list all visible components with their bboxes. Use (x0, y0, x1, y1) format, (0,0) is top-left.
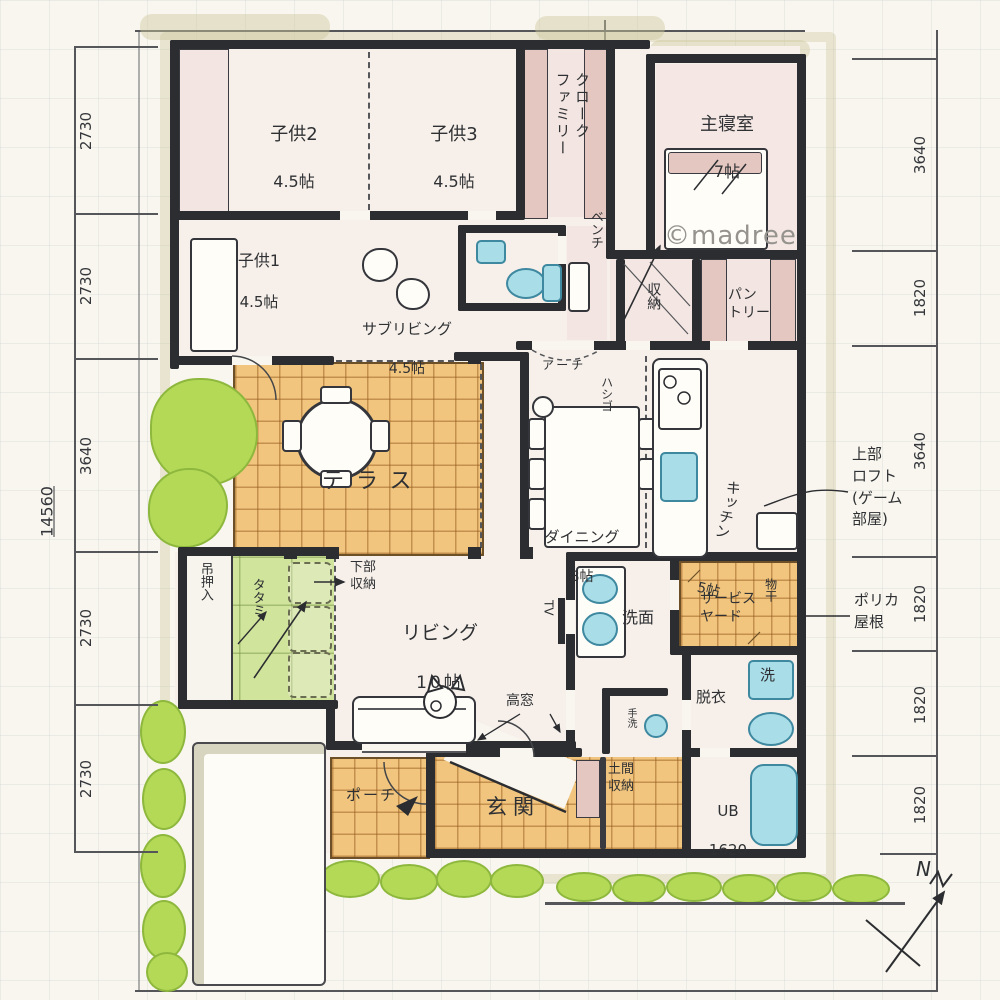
room-label-kodomo2: 子供2 4.5帖 (248, 100, 340, 194)
door-opening (682, 700, 691, 730)
door-opening (566, 600, 575, 634)
wall (458, 303, 566, 311)
dim-right-0: 3640 (911, 122, 929, 188)
door-opening (566, 690, 575, 730)
toilet-basin (476, 240, 506, 264)
dim-tick (852, 345, 936, 347)
floor-plan-canvas: ©madree 子供2 4.5帖 子供3 4.5帖 子供1 4.5帖 ファミリー… (0, 0, 1000, 1000)
note-lower-storage: 下部 収納 (350, 560, 376, 594)
wall (178, 547, 187, 709)
dim-tick (852, 650, 936, 652)
toilet-bowl (506, 268, 546, 299)
wall (178, 547, 338, 556)
shrub-row (380, 864, 438, 900)
note-arch: アーチ (542, 358, 586, 374)
wall (602, 688, 610, 754)
dim-left-2: 3640 (77, 423, 95, 489)
dim-tick (74, 851, 158, 853)
room-name: 主寝室 (700, 114, 754, 135)
shrub-row (612, 874, 666, 904)
dining-chair (528, 458, 546, 490)
pantry-shelf-left (701, 259, 727, 343)
room-size: 8帖 (571, 569, 594, 585)
closet-child2 (179, 49, 229, 215)
room-size: 7帖 (714, 162, 740, 181)
sofa-back-line (358, 708, 466, 710)
wall (170, 40, 650, 49)
dim-tick (74, 46, 158, 48)
wall (606, 40, 615, 259)
note-loft: 上部 ロフト (ゲーム 部屋) (852, 444, 902, 531)
dim-tick (74, 213, 158, 215)
shrub-row (722, 874, 776, 904)
dim-left-0: 2730 (77, 98, 95, 164)
wall (516, 40, 525, 220)
room-label-doma-storage: 土間 収納 (608, 762, 634, 796)
tv-unit (558, 598, 565, 644)
shrub (140, 834, 186, 898)
room-label-kodomo1: 子供1 4.5帖 (216, 230, 302, 313)
site-boundary-bottom (135, 990, 938, 992)
dim-tick (880, 853, 936, 855)
shrub (146, 952, 188, 992)
wall (426, 748, 435, 858)
laundry-sink (748, 712, 794, 746)
tatami-step-dashed (334, 556, 338, 700)
room-label-pantry: パン トリー (728, 286, 770, 322)
kitchen-sink (660, 452, 698, 502)
room-size: 4.5帖 (273, 172, 314, 191)
pantry-shelf-right (770, 259, 796, 343)
shrub-row (556, 872, 612, 902)
room-name: ダイニング (544, 528, 619, 546)
watermark: ©madree (664, 220, 797, 254)
wall (178, 700, 338, 709)
door-opening (232, 356, 272, 365)
tatami-storage-box (288, 562, 332, 604)
dim-tick (852, 556, 936, 558)
dim-right-4: 1820 (911, 672, 929, 738)
door-opening (626, 341, 650, 350)
dim-right-3: 1820 (911, 571, 929, 637)
wall (692, 259, 701, 343)
compass-cross (866, 920, 920, 966)
post (468, 352, 481, 364)
room-label-bath: UB 1620 (698, 782, 758, 860)
room-label-entrance: 玄関 (486, 794, 540, 821)
note-ladder: ハシゴ (598, 376, 614, 424)
sofa (352, 696, 476, 744)
room-label-terrace: テラス (322, 468, 424, 497)
parking-space (192, 742, 326, 986)
dining-stool (532, 396, 554, 418)
note-high-window: 高窓 (506, 692, 534, 710)
door-opening (500, 748, 534, 757)
terrace-chair (320, 386, 352, 404)
room-label-dining: ダイニング 8帖 (524, 508, 640, 586)
room-name: 子供2 (270, 124, 317, 145)
dim-tick (74, 551, 158, 553)
door-opening (700, 748, 730, 757)
room-label-master: 主寝室 7帖 (680, 90, 774, 184)
dim-right-2: 3640 (911, 418, 929, 484)
toilet-tank (542, 264, 562, 302)
compass-flourish (930, 872, 952, 886)
compass-label: N (916, 856, 931, 882)
wall (600, 757, 606, 849)
room-label-kodomo3: 子供3 4.5帖 (408, 100, 500, 194)
wall (170, 40, 179, 369)
door-opening (340, 211, 370, 220)
door-opening (670, 580, 679, 610)
shrub-row (832, 874, 890, 904)
partition-dashed (368, 52, 370, 210)
room-label-subliving: サブリビング 4.5帖 (348, 300, 466, 378)
room-label-porch: ポーチ (346, 786, 397, 806)
site-boundary-left (138, 30, 140, 990)
wall (646, 54, 655, 259)
dim-left-3: 2730 (77, 595, 95, 661)
room-size: 4.5帖 (433, 172, 474, 191)
shrub-row (776, 872, 832, 902)
kitchen-dining-dashed (645, 356, 647, 548)
room-label-hanging-closet: 吊押入 (196, 562, 213, 640)
dim-left-4: 2730 (77, 746, 95, 812)
room-label-service-yard: サービス ヤード (700, 590, 756, 626)
room-label-washroom: 洗面 (622, 608, 654, 629)
room-label-living: リビング 10帖 (382, 596, 498, 695)
post (468, 547, 481, 559)
dim-right-1: 1820 (911, 265, 929, 331)
bench-seat (568, 262, 590, 312)
room-size: 4.5帖 (389, 361, 425, 377)
shrub (142, 768, 186, 830)
room-name: リビング (402, 622, 478, 644)
dim-tick (852, 755, 936, 757)
room-label-dressing: 脱衣 (696, 688, 726, 708)
terrace-chair (282, 420, 302, 452)
opening-dashed (480, 364, 482, 548)
dim-tick (852, 250, 936, 252)
stove (658, 368, 702, 430)
dim-tick (852, 58, 936, 60)
door-opening (468, 211, 496, 220)
post (284, 547, 297, 559)
wall (602, 688, 668, 696)
door-opening (710, 341, 748, 350)
refrigerator (756, 512, 798, 550)
dim-left-1: 2730 (77, 253, 95, 319)
room-size: 1620 (709, 841, 747, 859)
shrub (142, 900, 186, 960)
wall (458, 225, 466, 311)
room-size: 4.5帖 (240, 293, 279, 311)
wall (646, 54, 806, 63)
wall (616, 259, 625, 343)
shrub-row (490, 864, 544, 898)
dim-left-total: 14560 (38, 479, 57, 545)
note-tv: TV (540, 600, 556, 634)
terrace-chair (370, 420, 390, 452)
dim-tick (74, 358, 158, 360)
label-hand-wash: 手洗 (624, 708, 637, 740)
room-size: 10帖 (416, 673, 464, 693)
dim-tick (74, 704, 158, 706)
room-name: UB (717, 802, 738, 820)
wall (797, 54, 806, 858)
room-label-storage: 収納 (644, 282, 662, 338)
room-name: サブリビング (362, 320, 452, 338)
shrub-row (320, 860, 380, 898)
shrub-row (666, 872, 722, 902)
wash-basin (582, 612, 618, 646)
family-closet-rack-left (524, 49, 548, 219)
dim-chain-left (74, 46, 76, 853)
shrub (140, 700, 186, 764)
post (326, 547, 339, 559)
label-drying: 物干 (762, 578, 778, 616)
yard-edge-line (545, 902, 905, 905)
room-label-tatami: タタミ (248, 578, 265, 642)
arch-opening (532, 341, 594, 350)
wall (458, 225, 566, 233)
room-name: 子供3 (430, 124, 477, 145)
room-label-family-closet: ファミリークローク (552, 72, 591, 168)
room-name: 子供1 (238, 251, 280, 270)
tatami-storage-box (288, 652, 332, 698)
label-bench: ベンチ (586, 210, 603, 262)
hand-wash-basin (644, 714, 668, 738)
site-boundary-right (936, 30, 938, 990)
dining-chair (528, 418, 546, 450)
porch-floor (330, 757, 430, 859)
shrub-row (436, 860, 492, 898)
entrance-closet (576, 760, 600, 818)
tatami-storage-box (288, 606, 332, 652)
door-opening (558, 236, 566, 264)
dim-right-5: 1820 (911, 772, 929, 838)
label-washer: 洗 (760, 666, 775, 686)
note-poly-roof: ポリカ 屋根 (854, 590, 899, 634)
